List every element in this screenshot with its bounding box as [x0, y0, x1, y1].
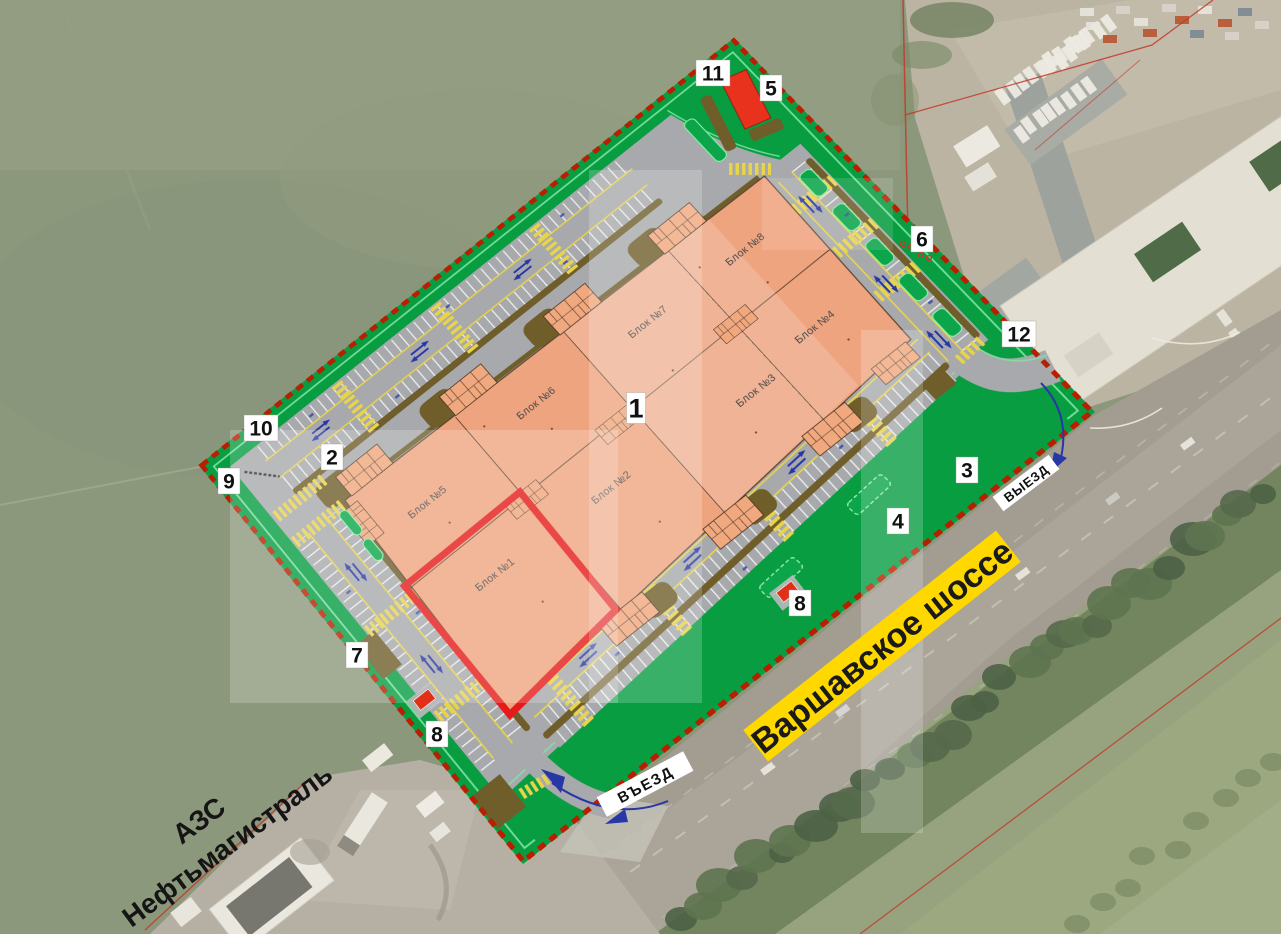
svg-text:9: 9: [223, 471, 235, 494]
svg-text:2: 2: [326, 447, 338, 470]
svg-text:1: 1: [628, 394, 643, 424]
svg-text:10: 10: [249, 418, 272, 441]
svg-text:6: 6: [916, 229, 928, 252]
svg-text:8: 8: [794, 593, 806, 616]
svg-text:8: 8: [431, 724, 443, 747]
svg-text:7: 7: [351, 645, 363, 668]
svg-text:12: 12: [1007, 324, 1030, 347]
svg-text:11: 11: [702, 63, 725, 86]
svg-text:ВЫЕЗД: ВЫЕЗД: [1001, 462, 1052, 505]
svg-text:3: 3: [961, 460, 973, 483]
svg-text:Нефтьмагистраль: Нефтьмагистраль: [117, 758, 339, 933]
svg-text:5: 5: [765, 78, 777, 101]
svg-text:4: 4: [892, 511, 904, 534]
